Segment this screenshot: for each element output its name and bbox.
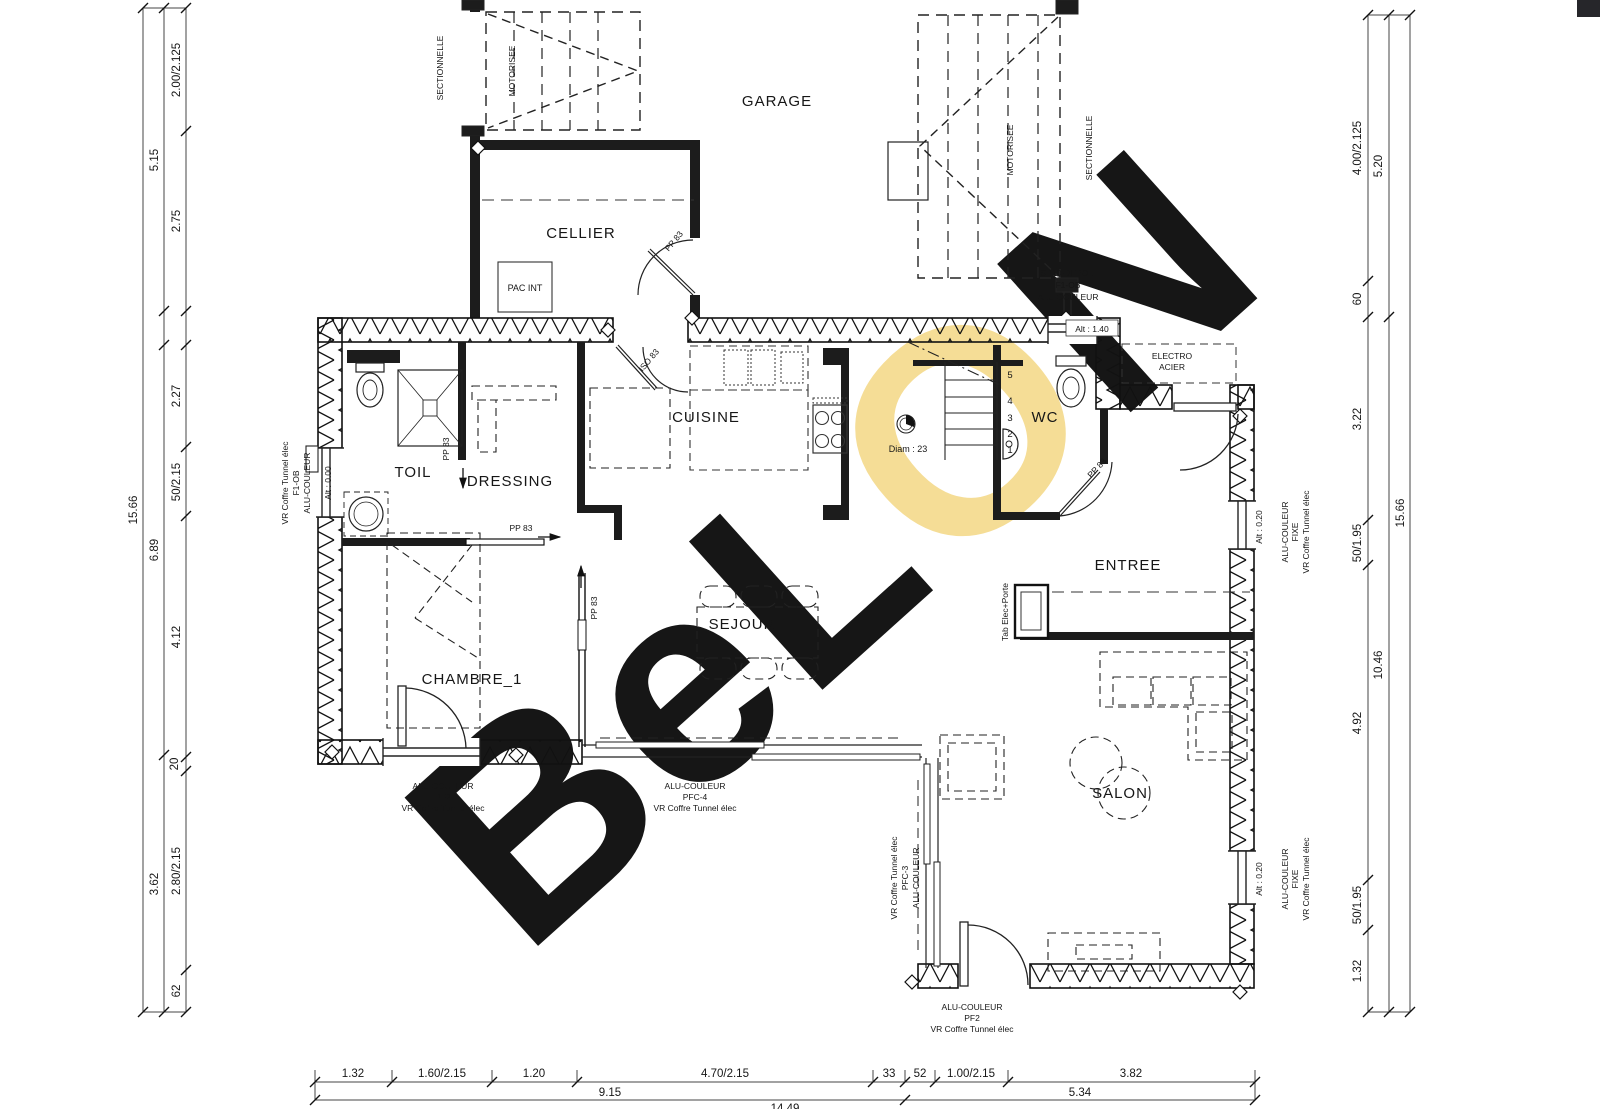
dim-right-5: 50/1.95 [1352,886,1364,924]
garage-door-left [462,0,640,136]
dim-bottom-3: 4.70/2.15 [701,1068,749,1080]
pf2-salon: PF2 [964,1013,980,1023]
alt020-lower: Alt : 0.20 [1254,862,1264,896]
vr-sejour: VR Coffre Tunnel élec [654,803,738,813]
dim-left-7: 62 [171,985,183,998]
alu-right-lower: ALU-COULEUR [1280,849,1290,910]
room-label-salon: SALON [1092,785,1148,802]
alu-salon: ALU-COULEUR [942,1002,1003,1012]
alt020-upper: Alt : 0.20 [1254,510,1264,544]
dim-left-2: 2.27 [171,385,183,407]
room-label-sejour: SEJOUR [709,616,776,633]
dim-left-mid-2: 3.62 [149,873,161,895]
dim-left-3: 50/2.15 [171,463,183,501]
room-label-wc: WC [1032,409,1059,426]
dim-left-6: 2.80/2.15 [171,847,183,895]
dim-right-2: 3.22 [1352,408,1364,430]
stair-5: 5 [1007,370,1012,381]
fixe-lower: FIXE [1290,869,1300,888]
vr-right-upper: VR Coffre Tunnel élec [1301,490,1311,574]
pf2-chambre: PF2 [435,792,451,802]
room-label-cellier: CELLIER [546,225,616,242]
vr-chambre: VR Coffre Tunnel élec [402,803,486,813]
floor-plan-svg: BeLON [0,0,1600,1109]
dim-left-mid-1: 6.89 [149,539,161,561]
corner-marker-black [1577,0,1600,17]
dim-bottom-4: 33 [883,1068,896,1080]
vr-salon: VR Coffre Tunnel élec [931,1024,1015,1034]
stair-2: 2 [1007,429,1012,440]
pac-int-label: PAC INT [508,283,543,293]
dim-bottom-grand-total: 14.49 [771,1103,800,1109]
room-label-dressing: DRESSING [467,473,553,490]
f1ob-left: F1-OB [291,470,301,495]
dim-bottom-0: 1.32 [342,1068,364,1080]
room-label-garage: GARAGE [742,93,812,110]
vr-right-lower: VR Coffre Tunnel élec [1301,837,1311,921]
alt140-label: Alt : 1.40 [1075,324,1109,334]
stair-4: 4 [1007,396,1012,407]
alu-left: ALU-COULEUR [302,453,312,514]
pfc4-label: PFC-4 [683,792,708,802]
room-label-entree: ENTREE [1095,557,1162,574]
dim-left-outer: 15.66 [128,496,140,525]
electro-label-1: ELECTRO [1152,351,1193,361]
pp83-toil: PP 83 [441,437,451,460]
sp10-label: SP10-DEPOLI [1041,268,1096,278]
dim-left-0: 2.00/2.125 [171,43,183,97]
stair-3: 3 [1007,413,1012,424]
dim-right-1: 60 [1352,293,1364,306]
f1ob-label-top: F1-OB [1055,280,1080,290]
pp83-dressing: PP 83 [509,523,532,533]
dim-bottom-7: 3.82 [1120,1068,1142,1080]
alu-pfc3: ALU-COULEUR [911,848,921,909]
dim-right-3: 50/1.95 [1352,524,1364,562]
dim-right-6: 1.32 [1352,960,1364,982]
alu-sejour: ALU-COULEUR [665,781,726,791]
watermark-logo: BeLON [348,86,1318,1005]
motorisee-right: MOTORISEE [1005,124,1015,175]
room-label-toil: TOIL [394,464,431,481]
dim-bottom-5: 52 [914,1068,927,1080]
alu-chambre: ALU-COULEUR [413,781,474,791]
dim-left-5: 20 [169,758,181,771]
dim-right-0: 4.00/2.125 [1352,121,1364,175]
room-label-cuisine: CUISINE [672,409,740,426]
dim-right-4: 4.92 [1352,712,1364,734]
dim-right-outer: 15.66 [1395,499,1407,528]
dim-bottom-6: 1.00/2.15 [947,1068,995,1080]
alu-right-upper: ALU-COULEUR [1280,502,1290,563]
dim-bottom-2: 1.20 [523,1068,545,1080]
stair-1: 1 [1007,445,1012,456]
diam-label: Diam : 23 [889,444,928,454]
sectionnelle-left: SECTIONNELLE [435,35,445,100]
entree-closet [1015,585,1250,638]
room-label-chambre: CHAMBRE_1 [422,671,523,688]
dim-bottom-1: 1.60/2.15 [418,1068,466,1080]
vr-pfc3: VR Coffre Tunnel élec [889,836,899,920]
dim-bottom-total-0: 9.15 [599,1087,621,1099]
dim-right-mid-1: 10.46 [1373,651,1385,680]
dressing-sliding-leaf [466,539,544,545]
fixe-upper: FIXE [1290,522,1300,541]
dim-bottom-total-1: 5.34 [1069,1087,1092,1099]
electro-label-2: ACIER [1159,362,1185,372]
dim-right-mid-0: 5.20 [1373,155,1385,177]
dim-left-mid-0: 5.15 [149,149,161,171]
pfc3-label: PFC-3 [900,865,910,890]
floor-plan-page: BeLON [0,0,1600,1109]
tab-elec-label: Tab Elec+Porte [1000,583,1010,641]
dim-left-1: 2.75 [171,210,183,232]
alu-label-top: ALU-COULEUR [1038,292,1099,302]
pp83-chambre: PP 83 [589,596,599,619]
dim-left-4: 4.12 [171,626,183,648]
sectionnelle-right: SECTIONNELLE [1084,115,1094,180]
alt000-left: Alt : 0.00 [323,466,333,500]
motorisee-left: MOTORISEE [507,45,517,96]
vr-left: VR Coffre Tunnel élec [280,441,290,525]
